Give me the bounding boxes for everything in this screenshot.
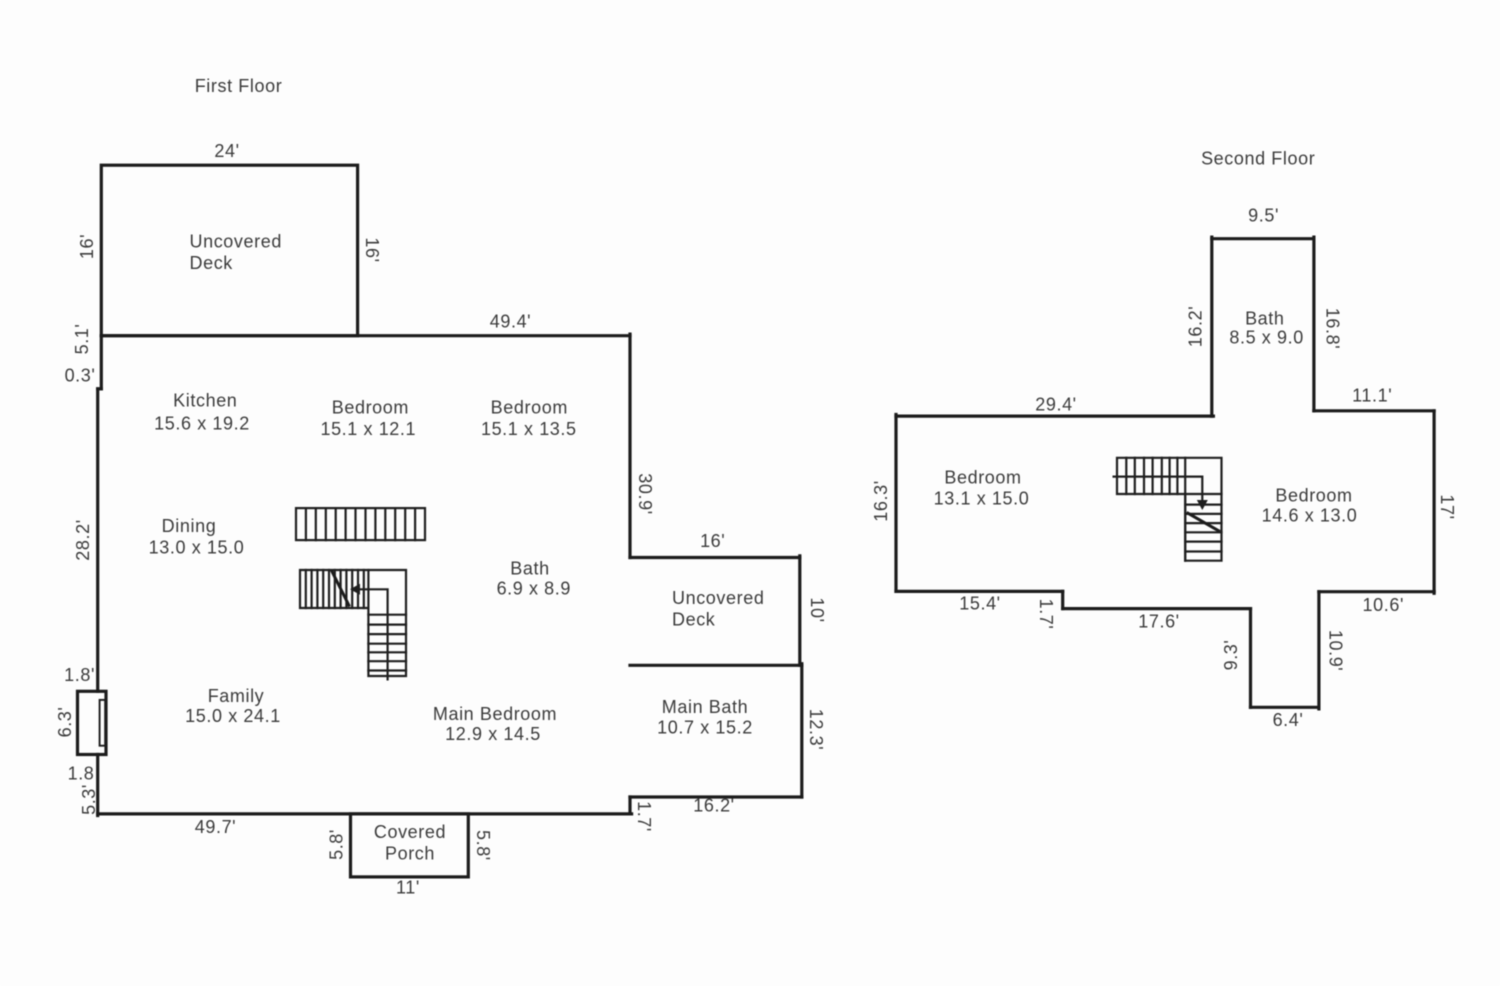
svg-text:Bedroom: Bedroom bbox=[332, 398, 409, 418]
svg-text:12.3': 12.3' bbox=[806, 709, 826, 750]
svg-text:Second Floor: Second Floor bbox=[1201, 148, 1315, 168]
svg-text:12.9 x 14.5: 12.9 x 14.5 bbox=[445, 724, 541, 744]
svg-text:6.9 x 8.9: 6.9 x 8.9 bbox=[497, 579, 571, 599]
svg-text:30.9': 30.9' bbox=[635, 473, 655, 514]
svg-text:Bedroom: Bedroom bbox=[944, 468, 1021, 488]
svg-text:6.4': 6.4' bbox=[1273, 710, 1304, 730]
svg-text:16': 16' bbox=[700, 531, 725, 551]
svg-text:Deck: Deck bbox=[672, 610, 716, 630]
svg-text:5.3': 5.3' bbox=[79, 784, 99, 815]
svg-text:13.0 x 15.0: 13.0 x 15.0 bbox=[149, 538, 245, 558]
svg-text:1.8: 1.8 bbox=[68, 764, 95, 784]
svg-text:Bedroom: Bedroom bbox=[1275, 486, 1352, 506]
svg-text:17': 17' bbox=[1437, 494, 1457, 519]
svg-text:14.6 x 13.0: 14.6 x 13.0 bbox=[1262, 506, 1358, 526]
svg-text:15.1 x 12.1: 15.1 x 12.1 bbox=[320, 419, 416, 439]
svg-text:24': 24' bbox=[214, 141, 239, 161]
svg-text:Porch: Porch bbox=[385, 844, 435, 864]
svg-text:8.5 x 9.0: 8.5 x 9.0 bbox=[1229, 327, 1303, 347]
svg-text:Dining: Dining bbox=[162, 516, 217, 536]
svg-text:9.3': 9.3' bbox=[1221, 640, 1241, 671]
svg-text:15.4': 15.4' bbox=[959, 594, 1000, 614]
svg-text:16.8': 16.8' bbox=[1323, 308, 1343, 349]
svg-text:16': 16' bbox=[77, 234, 97, 259]
svg-text:6.3': 6.3' bbox=[55, 707, 75, 738]
svg-text:13.1 x 15.0: 13.1 x 15.0 bbox=[934, 488, 1030, 508]
svg-text:16.2': 16.2' bbox=[693, 796, 734, 816]
svg-text:15.0 x 24.1: 15.0 x 24.1 bbox=[185, 706, 281, 726]
svg-text:11': 11' bbox=[396, 878, 420, 898]
svg-text:Uncovered: Uncovered bbox=[190, 232, 282, 252]
svg-text:1.7': 1.7' bbox=[1036, 599, 1056, 630]
svg-text:5.8': 5.8' bbox=[473, 830, 493, 861]
svg-text:Bath: Bath bbox=[1245, 309, 1284, 329]
svg-text:11.1': 11.1' bbox=[1352, 386, 1392, 406]
svg-text:5.8': 5.8' bbox=[327, 829, 347, 860]
svg-text:Main Bath: Main Bath bbox=[662, 697, 748, 717]
svg-text:Deck: Deck bbox=[190, 253, 234, 273]
svg-text:10.7 x 15.2: 10.7 x 15.2 bbox=[657, 718, 753, 738]
svg-text:Kitchen: Kitchen bbox=[173, 391, 237, 411]
svg-text:1.8': 1.8' bbox=[64, 665, 95, 685]
svg-text:Uncovered: Uncovered bbox=[672, 588, 764, 608]
svg-text:28.2': 28.2' bbox=[73, 519, 93, 560]
svg-text:10': 10' bbox=[807, 597, 827, 622]
svg-text:9.5': 9.5' bbox=[1248, 206, 1279, 226]
svg-text:Main Bedroom: Main Bedroom bbox=[433, 704, 557, 724]
svg-text:16': 16' bbox=[362, 237, 382, 262]
svg-text:49.4': 49.4' bbox=[490, 312, 531, 332]
svg-text:5.1': 5.1' bbox=[72, 324, 92, 355]
svg-text:17.6': 17.6' bbox=[1138, 612, 1179, 632]
svg-text:First Floor: First Floor bbox=[195, 76, 283, 96]
svg-text:16.2': 16.2' bbox=[1186, 306, 1206, 347]
svg-text:1.7': 1.7' bbox=[634, 801, 654, 832]
svg-text:0.3': 0.3' bbox=[65, 366, 96, 386]
svg-text:Bath: Bath bbox=[510, 559, 549, 579]
svg-text:29.4': 29.4' bbox=[1035, 395, 1076, 415]
svg-text:Covered: Covered bbox=[374, 822, 446, 842]
svg-text:49.7': 49.7' bbox=[195, 817, 236, 837]
svg-text:15.1 x 13.5: 15.1 x 13.5 bbox=[481, 419, 577, 439]
svg-text:Family: Family bbox=[208, 686, 265, 706]
svg-text:16.3': 16.3' bbox=[871, 480, 891, 521]
svg-text:10.6': 10.6' bbox=[1363, 595, 1404, 615]
svg-text:15.6 x 19.2: 15.6 x 19.2 bbox=[154, 414, 250, 434]
svg-text:10.9': 10.9' bbox=[1326, 630, 1346, 671]
svg-text:Bedroom: Bedroom bbox=[491, 398, 568, 418]
